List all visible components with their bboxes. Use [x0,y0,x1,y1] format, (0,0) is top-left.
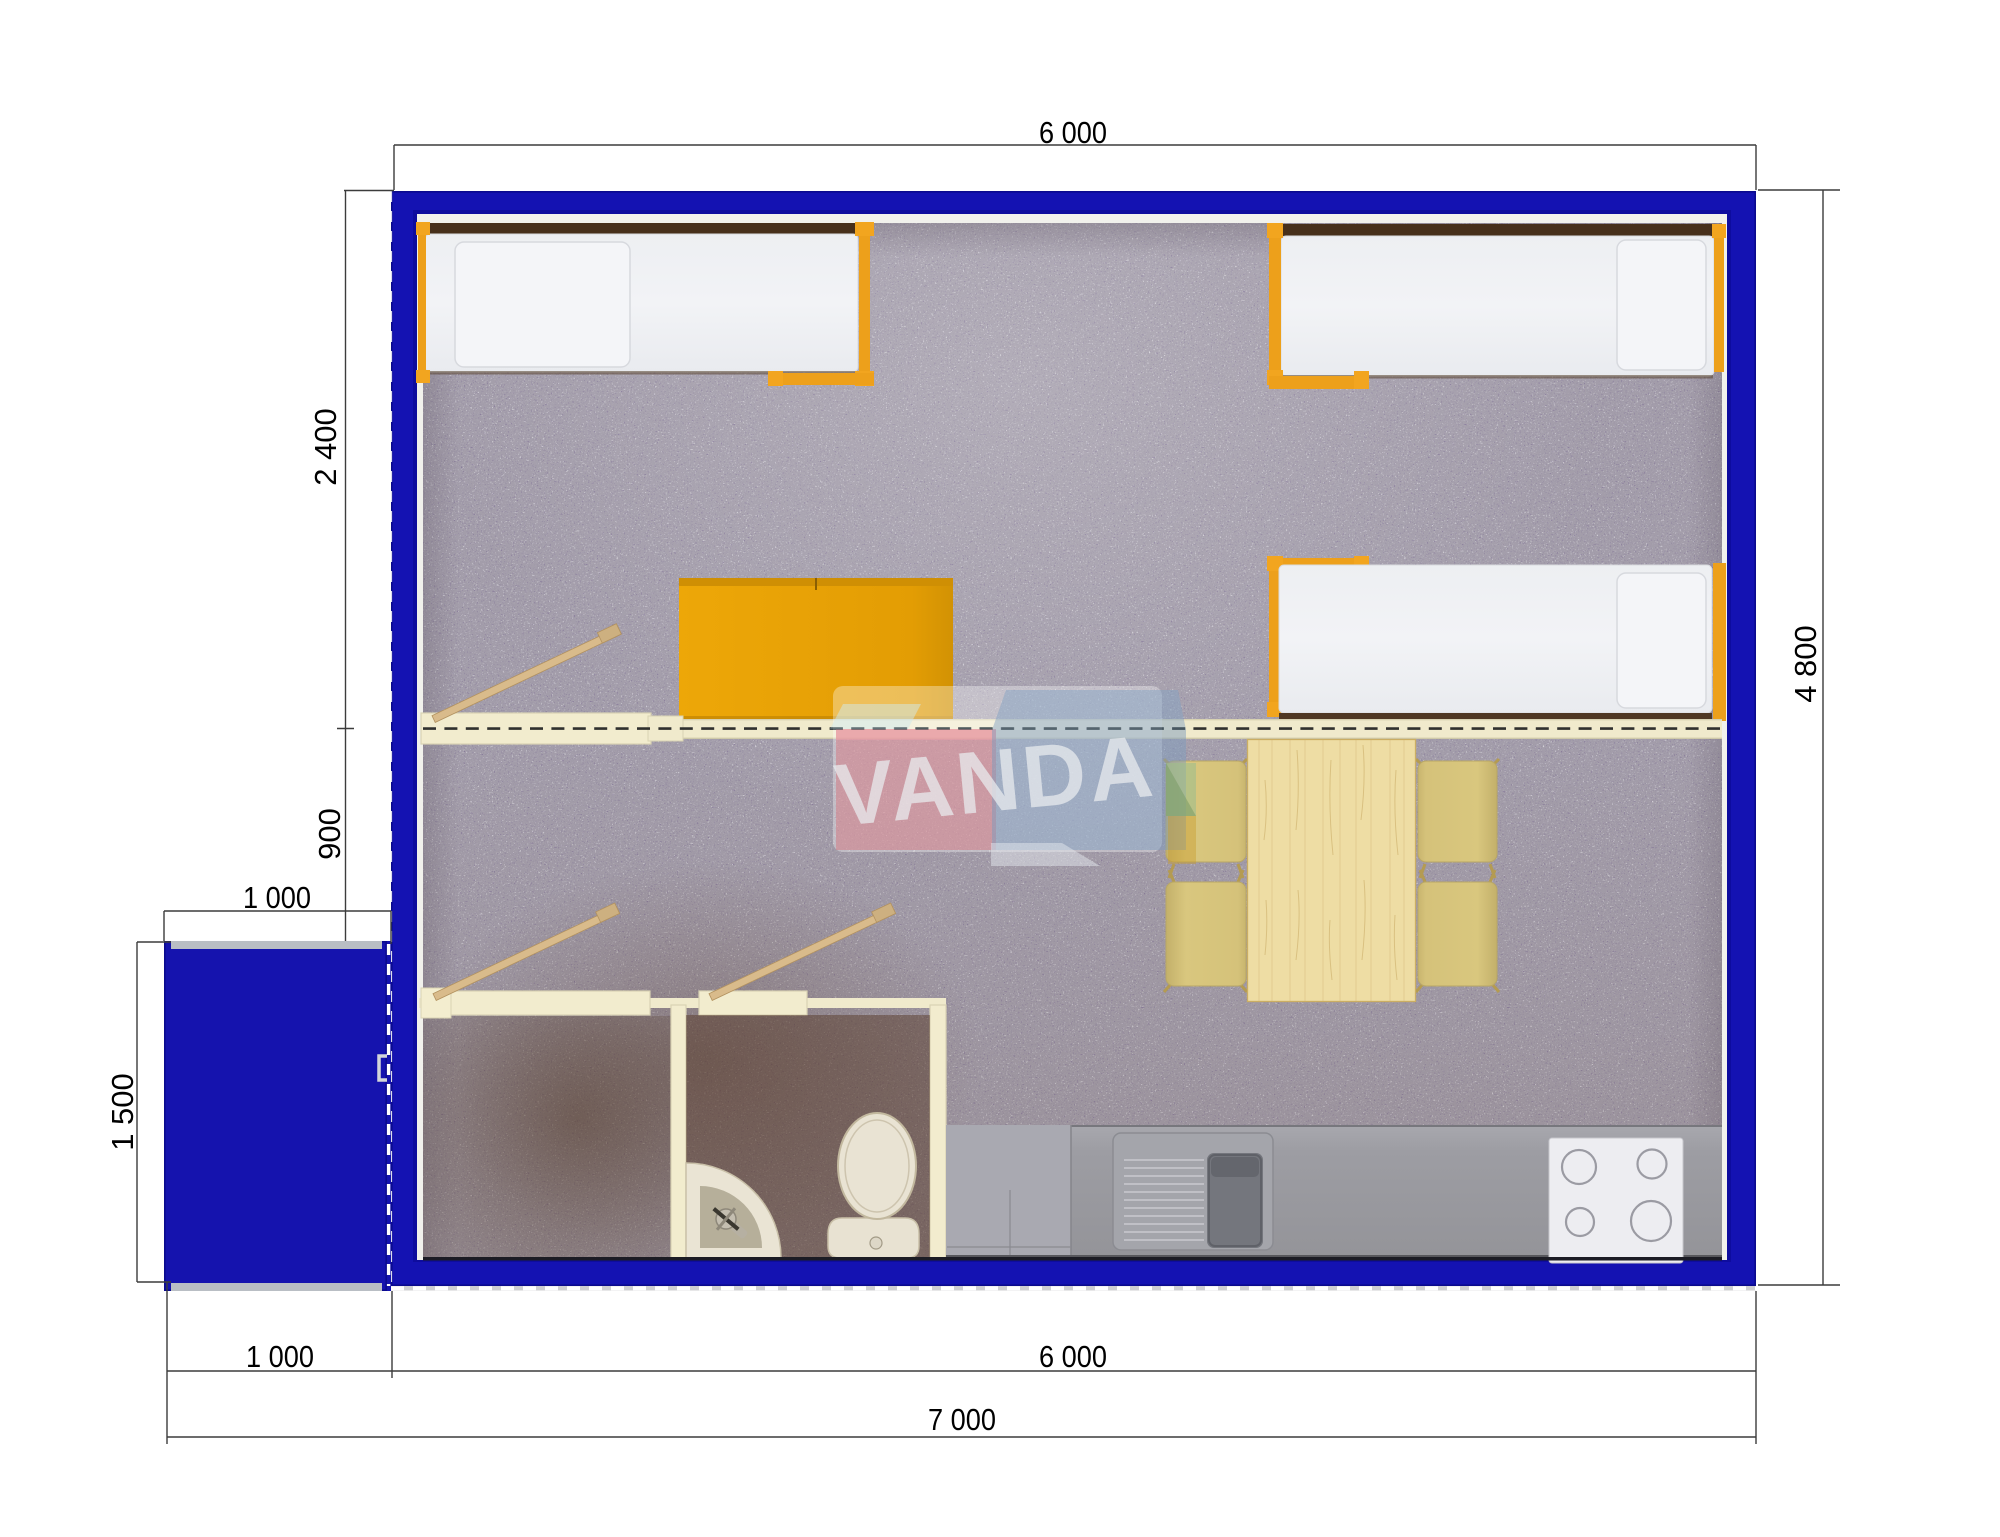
svg-text:1 000: 1 000 [246,1339,314,1374]
svg-text:6 000: 6 000 [1039,1339,1107,1374]
svg-text:900: 900 [312,808,347,860]
svg-text:4 800: 4 800 [1788,625,1823,703]
svg-text:1 000: 1 000 [243,880,311,915]
svg-text:7 000: 7 000 [928,1402,996,1437]
svg-text:1 500: 1 500 [105,1073,140,1151]
svg-text:2 400: 2 400 [308,408,343,486]
svg-text:6 000: 6 000 [1039,115,1107,150]
